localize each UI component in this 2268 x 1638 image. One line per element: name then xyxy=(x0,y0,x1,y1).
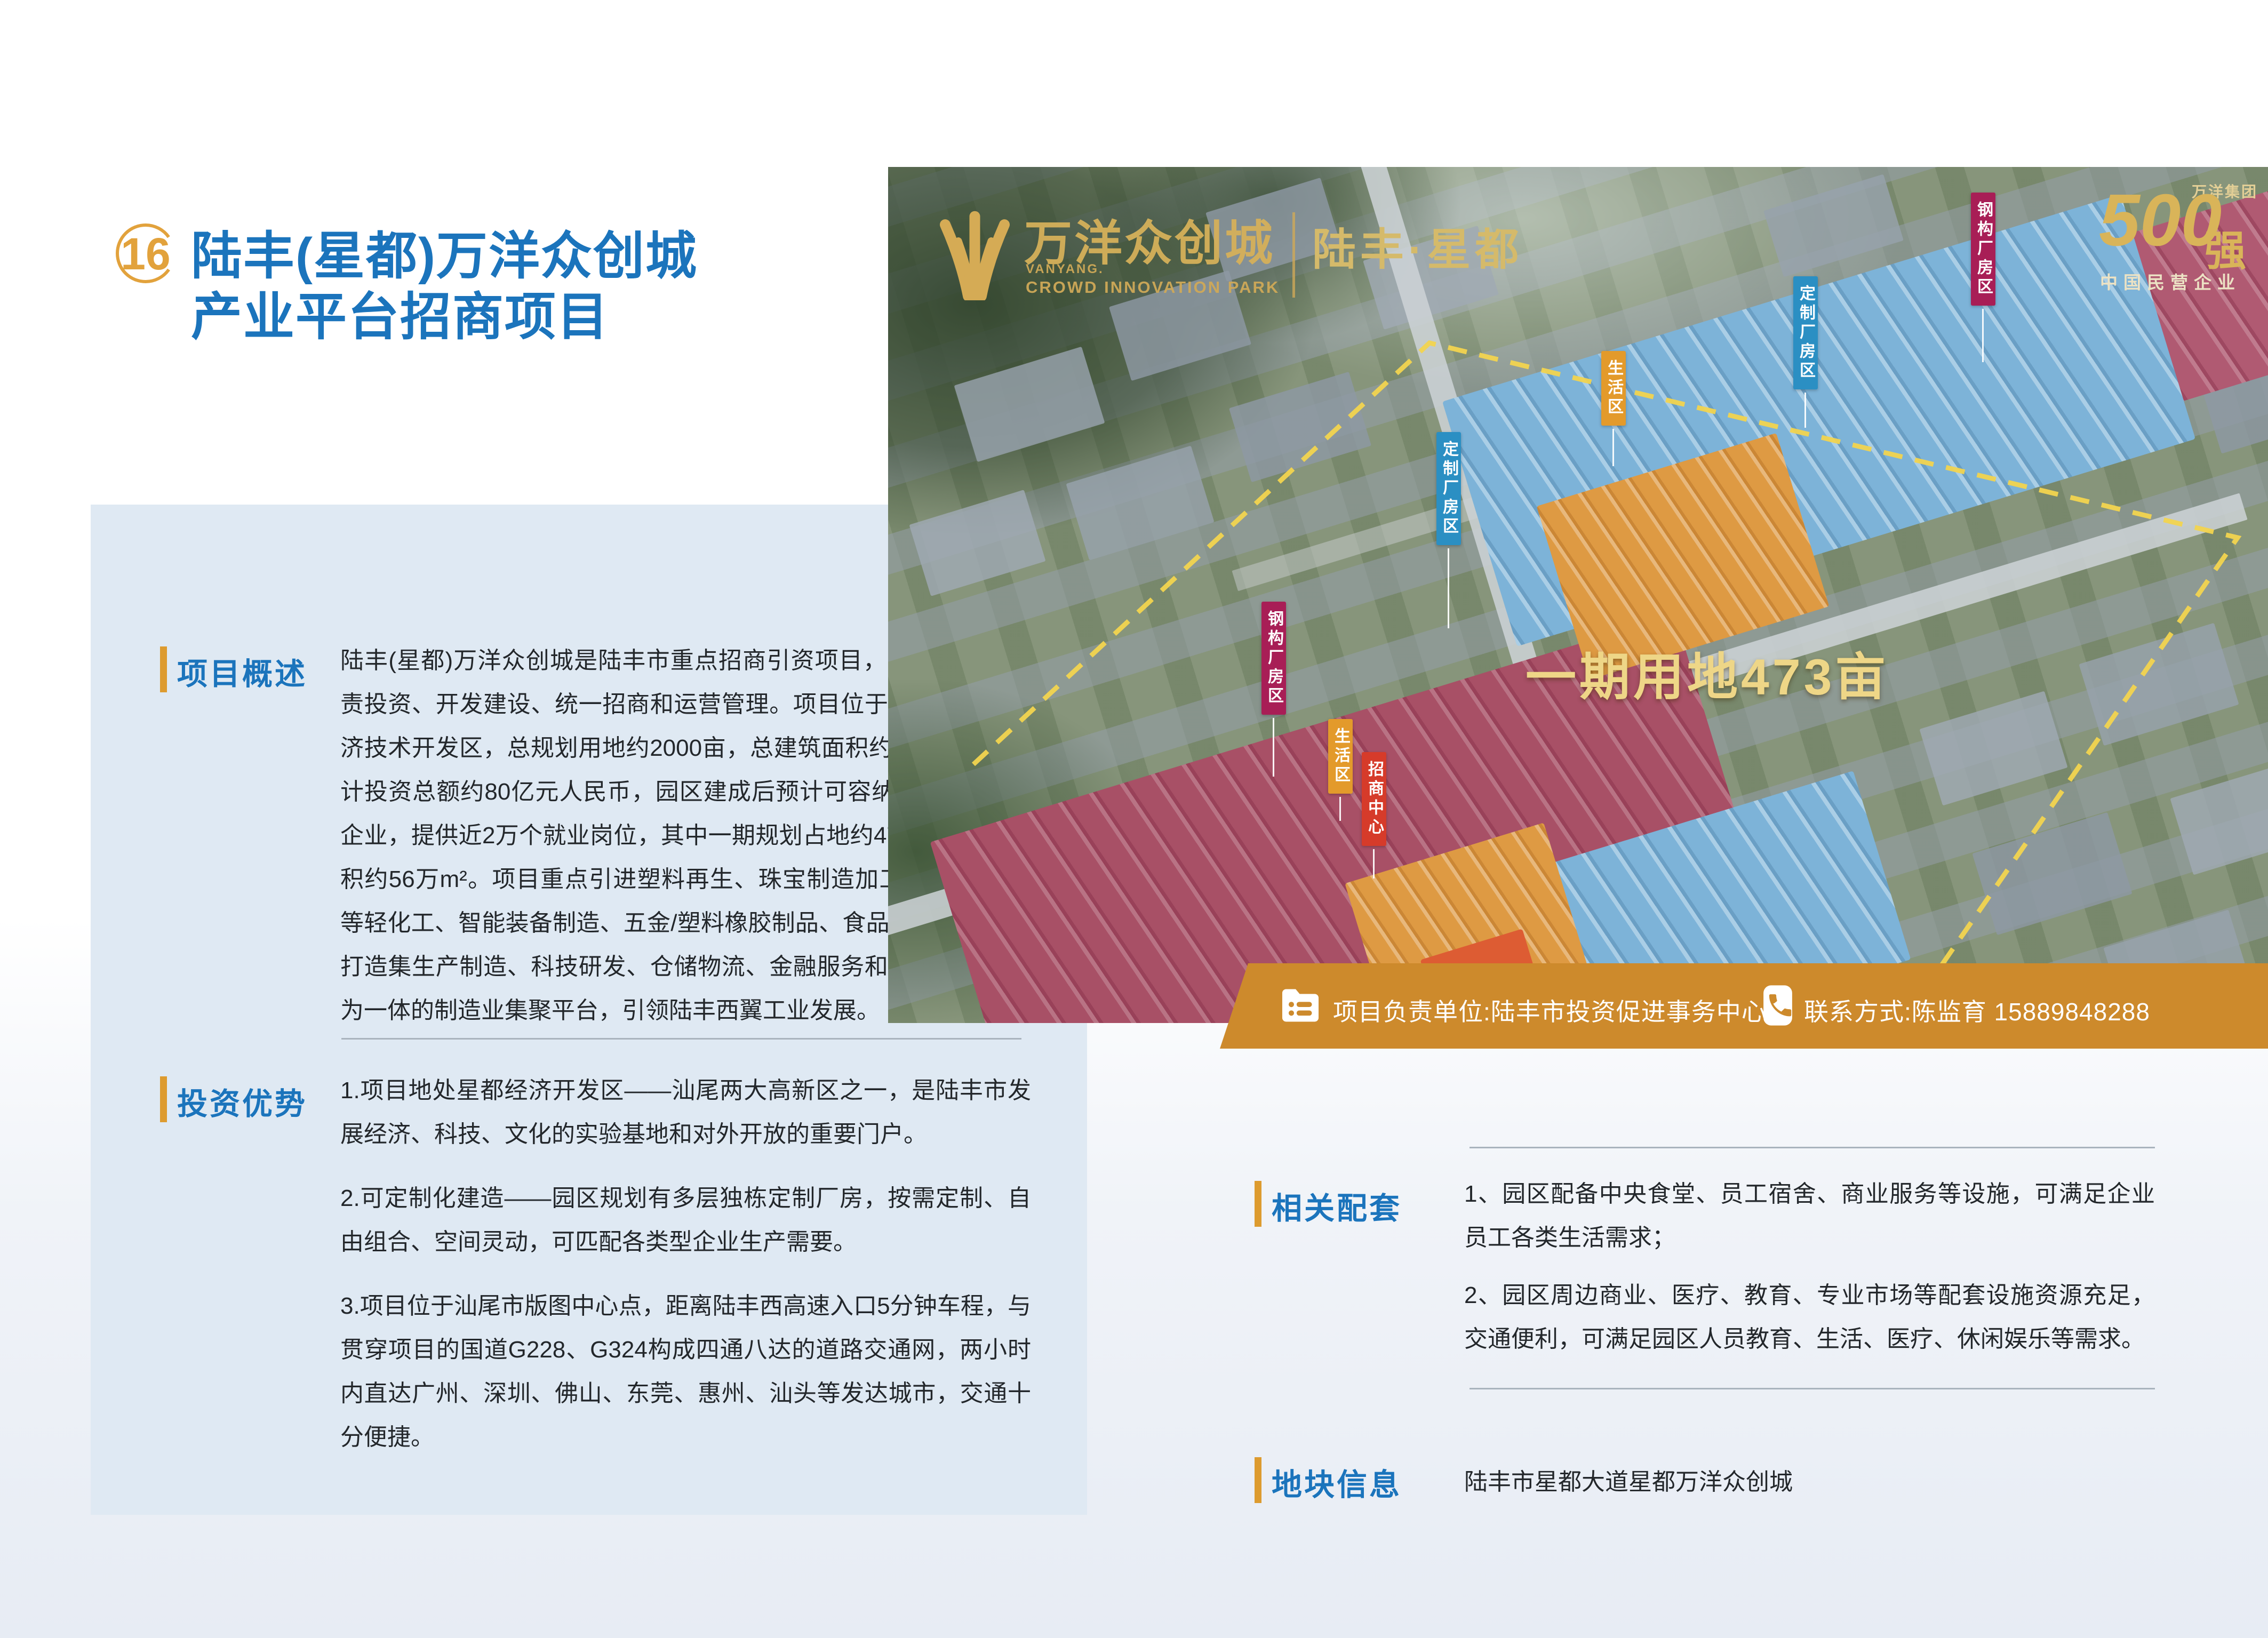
logo-name-en1: VANYANG. xyxy=(1026,262,1104,277)
plot-heading: 地块信息 xyxy=(1272,1460,1402,1504)
facilities-accent-bar xyxy=(1255,1181,1261,1227)
page-number-badge: 16 xyxy=(115,223,176,284)
facilities-body: 1、园区配备中央食堂、员工宿舍、商业服务等设施，可满足企业员工各类生活需求； 2… xyxy=(1464,1172,2155,1375)
contact-phone: 联系方式:陈监育 15889848288 xyxy=(1804,993,2150,1028)
page-number: 16 xyxy=(115,226,176,282)
map-label-custom-factory-1: 定制厂房区 xyxy=(1793,276,1818,389)
vanyang-logo-icon xyxy=(933,202,1016,300)
aerial-rendering-image: 钢构厂房区 定制厂房区 生活区 定制厂房区 钢构厂房区 生活区 招商中心 万洋众… xyxy=(888,167,2268,1023)
badge-caption: 中国民营企业 xyxy=(2100,268,2241,294)
map-label-pointer-line xyxy=(1804,393,1806,428)
map-label-pointer-line xyxy=(1612,429,1614,466)
map-label-pointer-line xyxy=(1982,309,1984,362)
map-label-living-zone-2: 生活区 xyxy=(1328,719,1353,794)
advantages-body: 1.项目地处星都经济开发区——汕尾两大高新区之一，是陆丰市发展经济、科技、文化的… xyxy=(340,1069,1031,1480)
phone-icon xyxy=(1755,982,1801,1028)
logo-divider xyxy=(1292,212,1295,298)
map-label-pointer-line xyxy=(1448,548,1449,628)
overview-heading: 项目概述 xyxy=(177,650,307,693)
map-label-steel-factory-2: 钢构厂房区 xyxy=(1261,602,1286,715)
page-title-line1: 陆丰(星都)万洋众创城 xyxy=(191,226,698,287)
advantages-item-1: 1.项目地处星都经济开发区——汕尾两大高新区之一，是陆丰市发展经济、科技、文化的… xyxy=(340,1069,1031,1156)
page-title: 陆丰(星都)万洋众创城 产业平台招商项目 xyxy=(191,226,698,348)
contact-unit: 项目负责单位:陆丰市投资促进事务中心 xyxy=(1333,993,1767,1028)
map-label-steel-factory-1: 钢构厂房区 xyxy=(1971,193,1995,306)
map-label-pointer-line xyxy=(1273,718,1274,777)
section-divider xyxy=(1470,1388,2155,1389)
facilities-item-1: 1、园区配备中央食堂、员工宿舍、商业服务等设施，可满足企业员工各类生活需求； xyxy=(1464,1172,2155,1260)
advantages-item-3: 3.项目位于汕尾市版图中心点，距离陆丰西高速入口5分钟车程，与贯穿项目的国道G2… xyxy=(340,1284,1031,1459)
section-divider xyxy=(1470,1147,2155,1148)
project-list-folder-icon xyxy=(1277,982,1323,1028)
map-label-living-zone-1: 生活区 xyxy=(1601,351,1626,426)
map-label-pointer-line xyxy=(1339,797,1341,821)
contact-bar: 项目负责单位:陆丰市投资促进事务中心 联系方式:陈监育 15889848288 xyxy=(1220,963,2268,1049)
plot-address: 陆丰市星都大道星都万洋众创城 xyxy=(1464,1460,2155,1504)
facilities-heading: 相关配套 xyxy=(1272,1184,1402,1228)
brochure-page: { "page": { "number": "16", "title_line1… xyxy=(0,0,2268,1638)
phase-area-text: 一期用地473亩 xyxy=(1526,636,1889,709)
logo-project-location: 陆丰·星都 xyxy=(1312,214,1523,277)
map-label-pointer-line xyxy=(1373,849,1375,878)
map-label-investment-center: 招商中心 xyxy=(1362,752,1386,846)
advantages-item-2: 2.可定制化建造——园区规划有多层独栋定制厂房，按需定制、自由组合、空间灵动，可… xyxy=(340,1177,1031,1264)
plot-accent-bar xyxy=(1255,1457,1261,1503)
overview-accent-bar xyxy=(160,646,167,692)
logo-name-en2: CROWD INNOVATION PARK xyxy=(1026,278,1280,297)
advantages-heading: 投资优势 xyxy=(177,1080,307,1123)
section-divider xyxy=(341,1038,1021,1040)
map-label-custom-factory-2: 定制厂房区 xyxy=(1436,432,1461,545)
top500-badge: 万洋集团 500 强 中国民营企业 xyxy=(2099,180,2264,295)
page-title-line2: 产业平台招商项目 xyxy=(191,287,698,348)
advantages-accent-bar xyxy=(160,1076,167,1122)
facilities-item-2: 2、园区周边商业、医疗、教育、专业市场等配套设施资源充足，交通便利，可满足园区人… xyxy=(1464,1274,2155,1361)
badge-500-number: 500 xyxy=(2099,180,2222,260)
